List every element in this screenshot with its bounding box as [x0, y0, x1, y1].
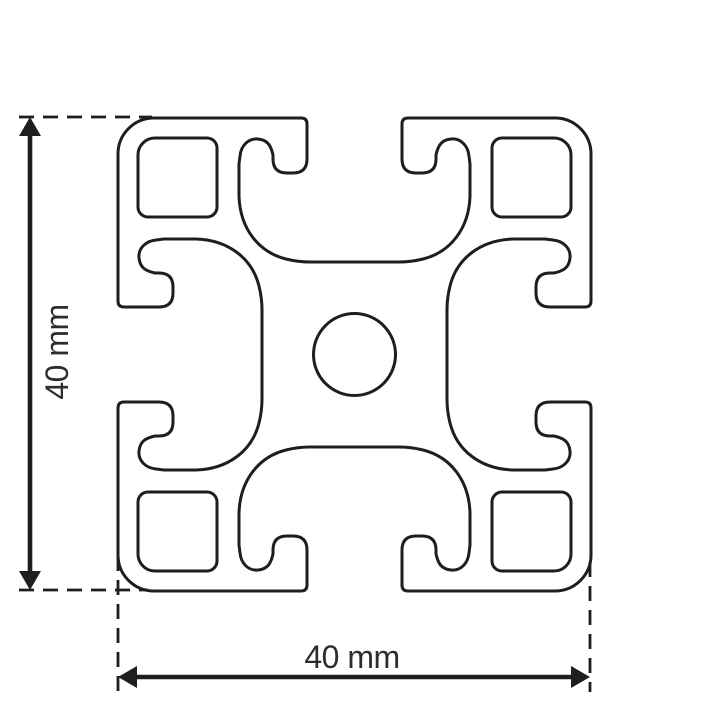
- profile-outer-contour: [118, 118, 591, 591]
- corner-cavity-top-left: [138, 138, 217, 217]
- width-dimension-arrow-left-icon: [118, 666, 137, 688]
- height-dimension-arrow-down-icon: [19, 571, 41, 590]
- height-dimension-label: 40 mm: [39, 304, 75, 399]
- profile-cross-section-drawing: 40 mm 40 mm: [0, 0, 709, 709]
- width-dimension-arrow-right-icon: [571, 666, 590, 688]
- corner-cavity-bottom-right: [492, 492, 571, 571]
- corner-cavity-top-right: [492, 138, 571, 217]
- technical-drawing-page: 40 mm 40 mm: [0, 0, 709, 709]
- center-bore-hole: [314, 314, 396, 396]
- corner-cavity-bottom-left: [138, 492, 217, 571]
- height-dimension-arrow-up-icon: [19, 117, 41, 136]
- width-dimension-label: 40 mm: [304, 639, 399, 675]
